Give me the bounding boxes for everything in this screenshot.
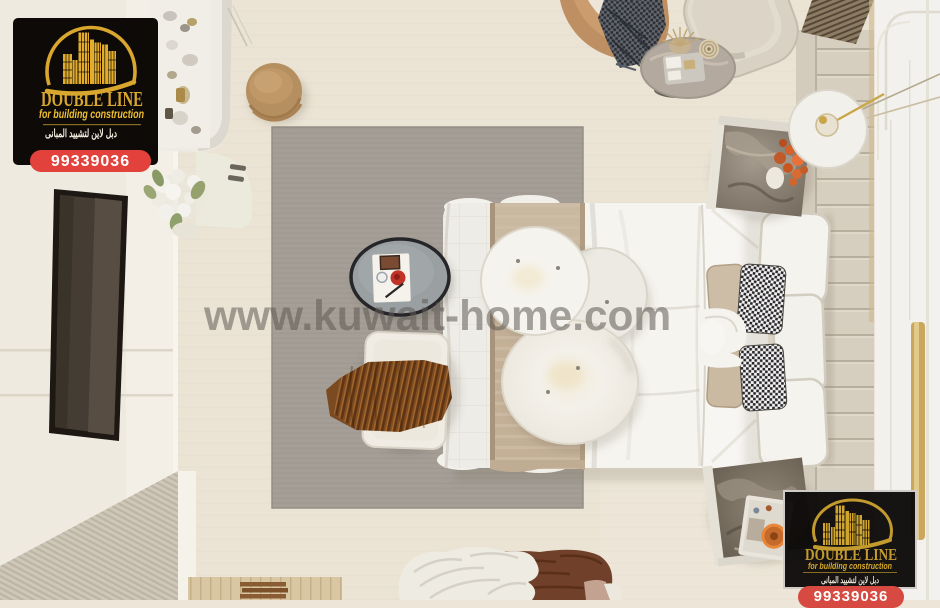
svg-text:for building construction: for building construction: [808, 561, 892, 572]
svg-text:دبل لاين لتشييد المبانى: دبل لاين لتشييد المبانى: [821, 575, 879, 586]
svg-text:DOUBLE LINE: DOUBLE LINE: [41, 87, 143, 111]
svg-text:دبل لاين لتشييد المبانى: دبل لاين لتشييد المبانى: [45, 128, 117, 140]
svg-text:for building construction: for building construction: [39, 109, 144, 121]
